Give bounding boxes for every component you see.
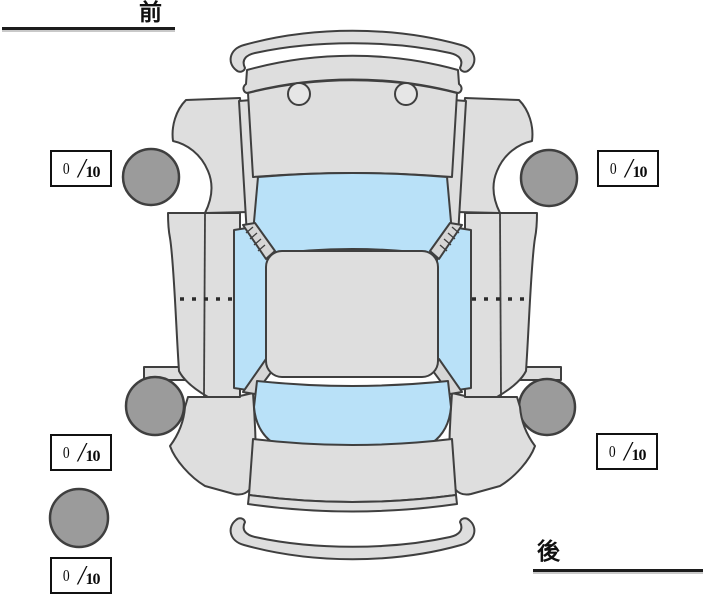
vehicle-inspection-diagram: 前 後 0/10 0/10 0/10 0/10 0/10: [0, 0, 711, 600]
rear-bumper-shape: [231, 518, 475, 559]
score-value: 0: [63, 443, 70, 463]
door-seam-left: [204, 214, 205, 396]
rear-underline: [533, 569, 703, 572]
car-top-view: [0, 0, 711, 600]
rear-window-glass: [254, 381, 451, 448]
rear-label: 後: [537, 541, 560, 564]
tire-score-rear-left[interactable]: 0/10: [50, 434, 112, 471]
score-max: 10: [632, 447, 646, 465]
windshield-glass: [253, 173, 452, 255]
door-seam-right: [500, 214, 501, 396]
score-value: 0: [610, 159, 617, 179]
front-fender-left-shape: [173, 98, 249, 213]
score-max: 10: [86, 448, 100, 466]
tire-rear-left-icon: [126, 377, 184, 435]
score-max: 10: [86, 164, 100, 182]
tire-front-right-icon: [521, 150, 577, 206]
front-underline: [2, 27, 175, 30]
tire-front-left-icon: [123, 149, 179, 205]
score-max: 10: [633, 164, 647, 182]
tire-score-rear-right[interactable]: 0/10: [596, 433, 658, 470]
washer-nozzle-right-icon: [395, 83, 417, 105]
roof-panel: [266, 251, 438, 377]
trunk-panel: [249, 439, 456, 502]
score-value: 0: [63, 566, 70, 586]
tire-score-spare[interactable]: 0/10: [50, 557, 112, 594]
tire-score-front-left[interactable]: 0/10: [50, 150, 112, 187]
score-value: 0: [609, 442, 616, 462]
score-max: 10: [86, 571, 100, 589]
tire-rear-right-icon: [519, 379, 575, 435]
front-label: 前: [139, 2, 162, 25]
spare-tire-icon: [50, 489, 108, 547]
hood-shape: [248, 80, 457, 177]
score-value: 0: [63, 159, 70, 179]
tire-score-front-right[interactable]: 0/10: [597, 150, 659, 187]
front-fender-right-shape: [456, 98, 532, 213]
washer-nozzle-left-icon: [288, 83, 310, 105]
